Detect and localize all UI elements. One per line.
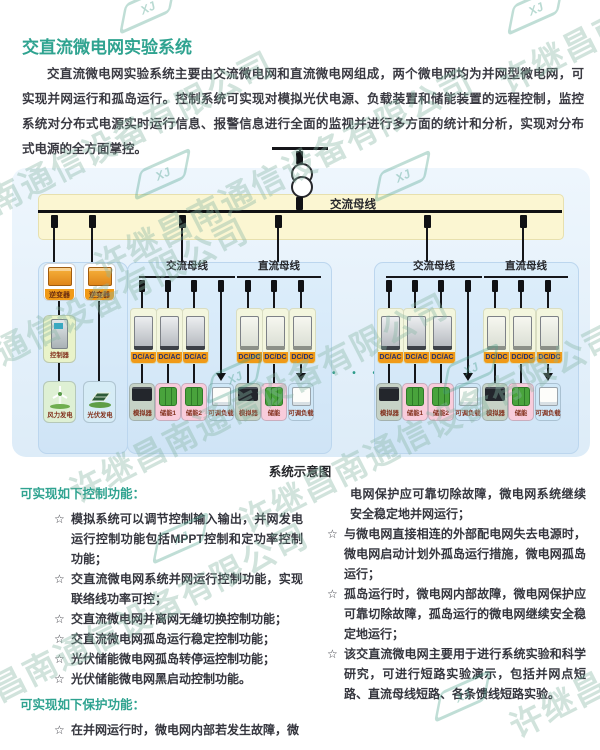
connector-line xyxy=(167,292,169,308)
pv-power-label: 光伏发电 xyxy=(87,411,112,420)
adjustable-load-card: 可调负载 xyxy=(208,383,234,421)
wind-power-label: 风力发电 xyxy=(47,411,72,420)
load-icon xyxy=(539,387,558,406)
subgrid-ac-bus-line xyxy=(139,276,235,278)
list-item: ☆交直流微电网并离网无缝切换控制功能； xyxy=(20,609,303,629)
feeder-line xyxy=(53,228,55,262)
arrow-down-icon xyxy=(216,373,226,381)
controller-card: 控制器 xyxy=(43,315,76,363)
simulator-icon xyxy=(379,387,399,401)
converter-cabinet-icon xyxy=(186,316,205,350)
breaker-icon xyxy=(298,280,304,292)
page-title: 交直流微电网实验系统 xyxy=(22,33,192,58)
inverter-label: 逆变器 xyxy=(45,289,74,300)
arrow-down-icon xyxy=(296,373,306,381)
dc-dc-badge: DC/DC xyxy=(510,352,535,363)
converter-cabinet-icon xyxy=(240,316,259,350)
star-bullet-icon: ☆ xyxy=(54,649,71,669)
dc-ac-converter-card: DC/AC xyxy=(429,308,456,364)
breaker-icon xyxy=(245,280,251,292)
breaker-icon xyxy=(438,280,444,292)
list-item: ☆模拟系统可以调节控制输入输出，并网发电运行控制功能包括MPPT控制和定功率控制… xyxy=(20,509,303,569)
connector-line xyxy=(167,362,169,383)
converter-cabinet-icon xyxy=(381,316,400,350)
subgrid-dc-bus-label: 直流母线 xyxy=(483,258,569,273)
connector-line xyxy=(388,362,390,383)
connector-line xyxy=(414,362,416,383)
connector-line xyxy=(494,362,496,383)
star-bullet-icon: ☆ xyxy=(54,569,71,589)
dc-ac-converter-card: DC/AC xyxy=(403,308,430,364)
converter-cabinet-icon xyxy=(160,316,179,350)
connector-line xyxy=(494,292,496,308)
storage2-card: 储能2 xyxy=(428,383,454,421)
connector-line xyxy=(141,292,143,308)
inverter-card: 逆变器 xyxy=(83,263,116,301)
dc-dc-converter-card: DC/DC xyxy=(536,308,563,364)
connector-line xyxy=(300,292,302,308)
converter-cabinet-icon xyxy=(540,316,559,350)
subgrid-panel-1: 交流母线 直流母线 DC/AC DC/AC DC/AC DC/DC DC/DC … xyxy=(127,262,332,454)
load-icon xyxy=(212,387,231,406)
diagram-caption: 系统示意图 xyxy=(240,461,360,480)
star-bullet-icon: ☆ xyxy=(327,584,344,604)
battery-icon xyxy=(432,387,450,406)
battery-icon xyxy=(185,387,203,406)
simulator-icon xyxy=(238,387,258,401)
ac-main-bus-line xyxy=(38,210,562,213)
simulator-card: 模拟器 xyxy=(376,383,402,421)
list-item: ☆交直流微电网系统并网运行控制功能，实现联络线功率可控； xyxy=(20,569,303,609)
breaker-icon xyxy=(424,215,431,228)
adjustable-load-card: 可调负载 xyxy=(535,383,561,421)
breaker-icon xyxy=(165,280,171,292)
transformer-icon xyxy=(291,176,313,198)
subgrid-dc-bus-line xyxy=(237,276,321,278)
star-bullet-icon: ☆ xyxy=(54,629,71,649)
dc-ac-converter-card: DC/AC xyxy=(156,308,183,364)
list-item: ☆与微电网直接相连的外部配电网失去电源时，微电网启动计划外孤岛运行措施，微电网孤… xyxy=(308,524,586,584)
dc-dc-converter-card: DC/DC xyxy=(236,308,263,364)
star-bullet-icon: ☆ xyxy=(54,669,71,689)
connector-line xyxy=(547,292,549,308)
adjustable-load-card: 可调负载 xyxy=(455,383,481,421)
dc-ac-badge: DC/AC xyxy=(430,352,455,363)
connector-line xyxy=(98,301,100,381)
converter-cabinet-icon xyxy=(134,316,153,350)
load-icon xyxy=(459,387,478,406)
breaker-icon xyxy=(89,215,96,228)
protection-heading: 可实现如下保护功能： xyxy=(20,695,303,715)
inverter-icon xyxy=(48,267,72,286)
star-bullet-icon: ☆ xyxy=(54,720,71,740)
battery-icon xyxy=(159,387,177,406)
dc-ac-badge: DC/AC xyxy=(183,352,208,363)
dc-dc-converter-card: DC/DC xyxy=(289,308,316,364)
dc-ac-converter-card: DC/AC xyxy=(182,308,209,364)
wind-turbine-icon xyxy=(47,385,73,409)
connector-line xyxy=(193,362,195,383)
dc-dc-converter-card: DC/DC xyxy=(262,308,289,364)
storage2-card: 储能2 xyxy=(181,383,207,421)
dc-ac-converter-card: DC/AC xyxy=(377,308,404,364)
adjustable-load-card: 可调负载 xyxy=(288,383,314,421)
subgrid-ac-bus-line xyxy=(386,276,482,278)
dc-ac-badge: DC/AC xyxy=(378,352,403,363)
dc-dc-badge: DC/DC xyxy=(484,352,509,363)
dc-ac-converter-card: DC/AC xyxy=(130,308,157,364)
subgrid-panel-2: 交流母线 直流母线 DC/AC DC/AC DC/AC DC/DC DC/DC … xyxy=(374,262,579,454)
simulator-icon xyxy=(132,387,152,401)
connector-line xyxy=(520,362,522,383)
dc-ac-badge: DC/AC xyxy=(131,352,156,363)
protection-functions-column: 电网保护应可靠切除故障，微电网系统继续安全稳定地并网运行； ☆与微电网直接相连的… xyxy=(308,484,586,704)
watermark-logo: XJ xyxy=(119,0,176,35)
controller-icon xyxy=(51,319,68,349)
star-bullet-icon: ☆ xyxy=(54,509,71,529)
controller-label: 控制器 xyxy=(50,351,69,360)
storage-card: 储能 xyxy=(508,383,534,421)
breaker-icon xyxy=(412,280,418,292)
control-functions-section: 可实现如下控制功能： ☆模拟系统可以调节控制输入输出，并网发电运行控制功能包括M… xyxy=(20,484,303,740)
wind-power-card: 风力发电 xyxy=(43,381,76,423)
subgrid-ac-bus-label: 交流母线 xyxy=(391,258,477,273)
breaker-icon xyxy=(191,280,197,292)
storage-card: 储能 xyxy=(261,383,287,421)
converter-cabinet-icon xyxy=(293,316,312,350)
list-item: ☆光伏储能微电网孤岛转停运控制功能； xyxy=(20,649,303,669)
arrow-down-icon xyxy=(543,373,553,381)
list-item: ☆该交直流微电网主要用于进行系统实验和科学研究，可进行短路实验演示，包括并网点短… xyxy=(308,644,586,704)
connector-line xyxy=(273,292,275,308)
connector-line xyxy=(440,362,442,383)
dc-ac-badge: DC/AC xyxy=(404,352,429,363)
converter-cabinet-icon xyxy=(487,316,506,350)
breaker-icon xyxy=(51,215,58,228)
connector-line xyxy=(520,292,522,308)
converter-cabinet-icon xyxy=(407,316,426,350)
list-item: ☆交直流微电网孤岛运行稳定控制功能； xyxy=(20,629,303,649)
breaker-icon xyxy=(271,280,277,292)
load-feeder-line xyxy=(467,292,469,373)
breaker-icon xyxy=(296,197,303,210)
subgrid-dc-bus-line xyxy=(484,276,568,278)
control-heading: 可实现如下控制功能： xyxy=(20,484,303,504)
subgrid-dc-bus-label: 直流母线 xyxy=(236,258,322,273)
dc-dc-converter-card: DC/DC xyxy=(483,308,510,364)
connector-line xyxy=(247,362,249,383)
feeder-line xyxy=(91,228,93,262)
dc-dc-badge: DC/DC xyxy=(290,352,315,363)
list-item: ☆孤岛运行时，微电网内部故障，微电网保护应可靠切除故障，孤岛运行的微电网继续安全… xyxy=(308,584,586,644)
inverter-icon xyxy=(88,267,112,286)
simulator-card: 模拟器 xyxy=(235,383,261,421)
dc-dc-badge: DC/DC xyxy=(237,352,262,363)
breaker-icon xyxy=(545,280,551,292)
converter-cabinet-icon xyxy=(266,316,285,350)
star-bullet-icon: ☆ xyxy=(327,644,344,664)
star-bullet-icon: ☆ xyxy=(327,524,344,544)
connector-line xyxy=(388,292,390,308)
breaker-icon xyxy=(520,215,527,228)
battery-icon xyxy=(265,387,283,406)
connector-line xyxy=(247,292,249,308)
sources-panel: 逆变器 逆变器 控制器 风力发电 xyxy=(38,262,128,454)
breaker-icon xyxy=(179,215,186,228)
star-bullet-icon: ☆ xyxy=(54,609,71,629)
breaker-icon xyxy=(518,280,524,292)
breaker-icon xyxy=(492,280,498,292)
battery-icon xyxy=(512,387,530,406)
connector-line xyxy=(440,292,442,308)
converter-cabinet-icon xyxy=(433,316,452,350)
page: 交直流微电网实验系统 交直流微电网实验系统主要由交流微电网和直流微电网组成，两个… xyxy=(0,0,600,750)
connector-line xyxy=(58,301,60,315)
list-item: ☆在并网运行时，微电网内部若发生故障，微 xyxy=(20,720,303,740)
subgrid-ac-bus-label: 交流母线 xyxy=(144,258,230,273)
breaker-icon xyxy=(218,280,224,292)
load-icon xyxy=(292,387,311,406)
inverter-label: 逆变器 xyxy=(85,289,114,300)
simulator-card: 模拟器 xyxy=(482,383,508,421)
simulator-icon xyxy=(485,387,505,401)
dc-dc-badge: DC/DC xyxy=(537,352,562,363)
simulator-card: 模拟器 xyxy=(129,383,155,421)
list-item: ☆光伏储能微电网黑启动控制功能。 xyxy=(20,669,303,689)
dc-ac-badge: DC/AC xyxy=(157,352,182,363)
watermark-logo: XJ xyxy=(507,0,564,36)
inverter-card: 逆变器 xyxy=(43,263,76,301)
battery-icon xyxy=(406,387,424,406)
converter-cabinet-icon xyxy=(513,316,532,350)
dc-dc-badge: DC/DC xyxy=(263,352,288,363)
storage1-card: 储能1 xyxy=(402,383,428,421)
connector-line xyxy=(58,363,60,381)
connector-line xyxy=(141,362,143,383)
continuation-text: 电网保护应可靠切除故障，微电网系统继续安全稳定地并网运行； xyxy=(350,484,586,524)
pv-power-card: 光伏发电 xyxy=(83,381,116,423)
connector-line xyxy=(193,292,195,308)
storage1-card: 储能1 xyxy=(155,383,181,421)
breaker-icon xyxy=(465,280,471,292)
load-feeder-line xyxy=(220,292,222,373)
breaker-icon xyxy=(139,280,145,292)
connector-line xyxy=(273,362,275,383)
dc-dc-converter-card: DC/DC xyxy=(509,308,536,364)
breaker-icon xyxy=(275,215,282,228)
breaker-icon xyxy=(386,280,392,292)
connector-line xyxy=(414,292,416,308)
arrow-down-icon xyxy=(463,373,473,381)
solar-panel-icon xyxy=(87,385,113,409)
breaker-icon xyxy=(296,151,303,164)
